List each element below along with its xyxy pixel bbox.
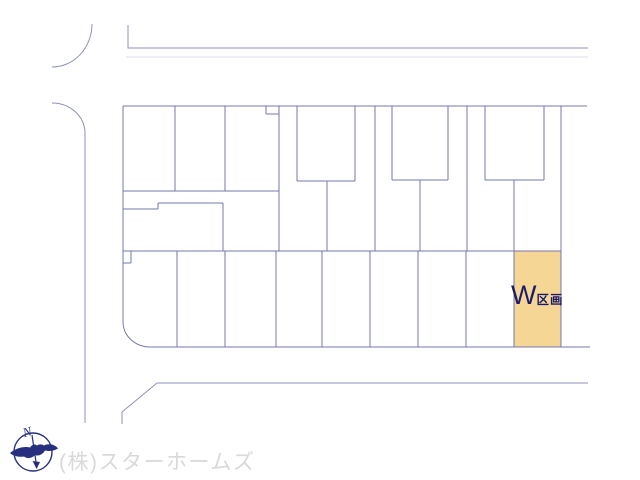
road-top-edge	[128, 25, 588, 48]
compass-logo-icon: N	[8, 420, 64, 476]
compass-needle-arrowhead	[33, 461, 40, 469]
road-lines	[52, 24, 588, 424]
company-name: (株)スターホームズ	[59, 446, 255, 476]
road-bottom-edge	[122, 383, 588, 424]
site-plan-drawing	[0, 0, 640, 480]
bird-logo-icon	[10, 444, 58, 458]
site-plan-page: W区画 N (株)スターホームズ	[0, 0, 640, 480]
lot-suffix: 区画	[536, 293, 563, 307]
lot-name: W	[511, 280, 536, 310]
parcel-rounded-corner	[123, 322, 150, 347]
road-corner-curves	[52, 24, 92, 423]
highlighted-lot-label: W区画	[511, 280, 563, 315]
